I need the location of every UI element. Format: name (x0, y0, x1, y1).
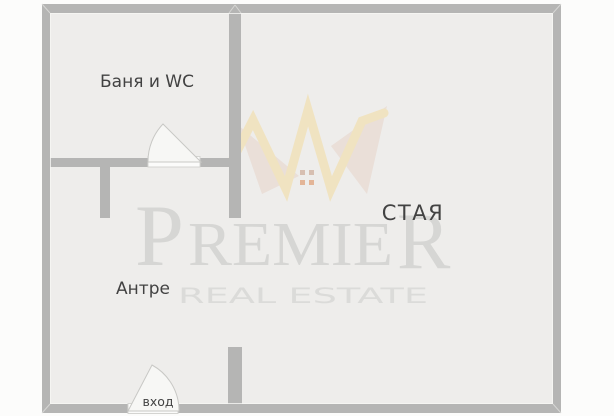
wall-outer-bottom-left (42, 404, 128, 413)
wall-interior-middle-lower (228, 347, 242, 405)
apartment-floor (42, 4, 561, 413)
window-square (309, 180, 314, 185)
wall-outer-bottom-right (178, 404, 561, 413)
wall-bathroom-bottom-right (200, 158, 229, 167)
room-label-bathroom: Баня и WC (100, 72, 194, 92)
entrance-label: вход (142, 394, 173, 409)
room-label-living-room: СТАЯ (382, 201, 444, 225)
floorplan-image: P REMIE R REAL ESTATE Баня и WC Антре СТ… (0, 0, 614, 416)
floorplan-svg: P REMIE R REAL ESTATE Баня и WC Антре СТ… (0, 0, 614, 416)
wall-outer-top (42, 4, 561, 13)
brand-middle-letters: REMIE (188, 211, 393, 279)
wall-outer-right (553, 4, 561, 413)
window-square (300, 180, 305, 185)
wall-outer-left (42, 4, 50, 413)
wall-interior-middle-upper (229, 13, 241, 218)
wall-bathroom-bottom-left (50, 158, 148, 167)
watermark-tagline-text: REAL ESTATE (178, 284, 428, 308)
wall-hallway-stub (100, 158, 110, 218)
brand-letter-p: P (135, 188, 184, 285)
window-square (309, 170, 314, 175)
room-label-hallway: Антре (116, 279, 170, 299)
window-square (300, 170, 305, 175)
